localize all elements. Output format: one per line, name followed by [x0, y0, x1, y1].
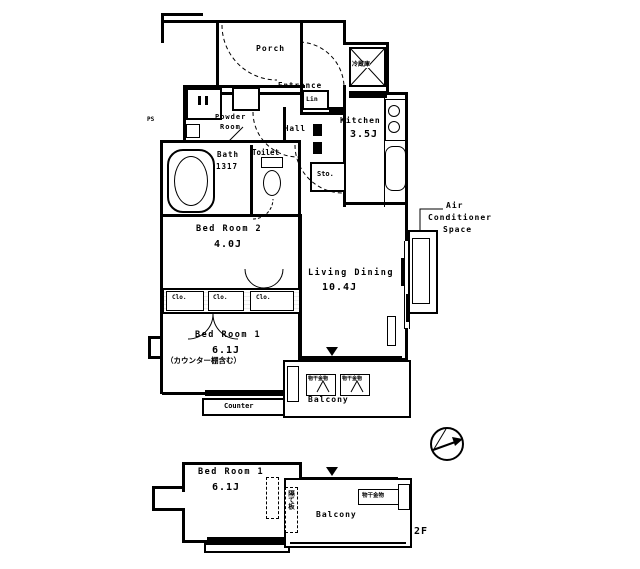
label-counter: Counter — [224, 403, 254, 410]
label-partition-board: 隔て板 — [287, 490, 294, 510]
room-area-kitchen: 3.5J — [350, 130, 378, 140]
bedroom2-closet-door — [264, 269, 283, 288]
label-laundry-hardware: 物干金物 — [308, 377, 328, 382]
room-label-linen: Lin — [306, 96, 318, 103]
room-label-living-dining: Living Dining — [308, 269, 394, 278]
room-label-kitchen: Kitchen — [340, 117, 381, 125]
label-ac-space-1: Air — [446, 202, 463, 210]
room-label-powder-2: Room — [220, 124, 241, 131]
label-laundry-hardware-2f: 物干金物 — [362, 494, 384, 500]
room-label-storage: Sto. — [317, 171, 334, 178]
compass-icon — [431, 428, 463, 460]
room-label-balcony-1f: Balcony — [308, 396, 349, 404]
toilet-door-arc — [253, 199, 273, 219]
label-laundry-hardware: 物干金物 — [342, 377, 362, 382]
entrance-door-arc — [300, 42, 344, 86]
room-area-living-dining: 10.4J — [322, 283, 357, 293]
room-label-powder-1: Powder — [215, 114, 246, 121]
laundry-hook-icon — [351, 381, 363, 392]
label-ac-space-2: Conditioner — [428, 214, 492, 222]
laundry-hook-icon — [317, 381, 329, 392]
room-label-bath: Bath — [217, 151, 239, 159]
room-label-porch: Porch — [256, 45, 285, 53]
room-label-balcony-2f: Balcony — [316, 511, 357, 519]
room-note-bedroom1: （カウンター棚含む） — [166, 357, 241, 365]
label-closet: Clo. — [256, 295, 270, 301]
label-closet: Clo. — [172, 295, 186, 301]
living-door-arc — [295, 145, 343, 193]
bedroom2-closet-door — [245, 269, 264, 288]
room-label-toilet: Toilet — [252, 149, 279, 157]
room-area-bedroom2: 4.0J — [214, 240, 242, 250]
label-floor-2f: 2F — [414, 527, 428, 537]
room-label-bedroom1-2f: Bed Room 1 — [198, 468, 264, 477]
room-label-bedroom1: Bed Room 1 — [195, 331, 261, 340]
label-closet: Clo. — [213, 295, 227, 301]
label-refrigerator: 冷蔵庫 — [352, 62, 370, 68]
label-pipe-space: PS — [147, 117, 154, 123]
room-label-bedroom2: Bed Room 2 — [196, 225, 262, 234]
room-label-entrance: Entrance — [278, 82, 322, 90]
floorplan-page: { "floorplan": { "rooms": { "porch": {"n… — [0, 0, 640, 569]
room-size-bath: 1317 — [216, 163, 238, 171]
room-label-hall: Hall — [284, 125, 306, 133]
room-area-bedroom1-2f: 6.1J — [212, 483, 240, 493]
label-ac-space-3: Space — [443, 226, 472, 234]
room-area-bedroom1: 6.1J — [212, 346, 240, 356]
